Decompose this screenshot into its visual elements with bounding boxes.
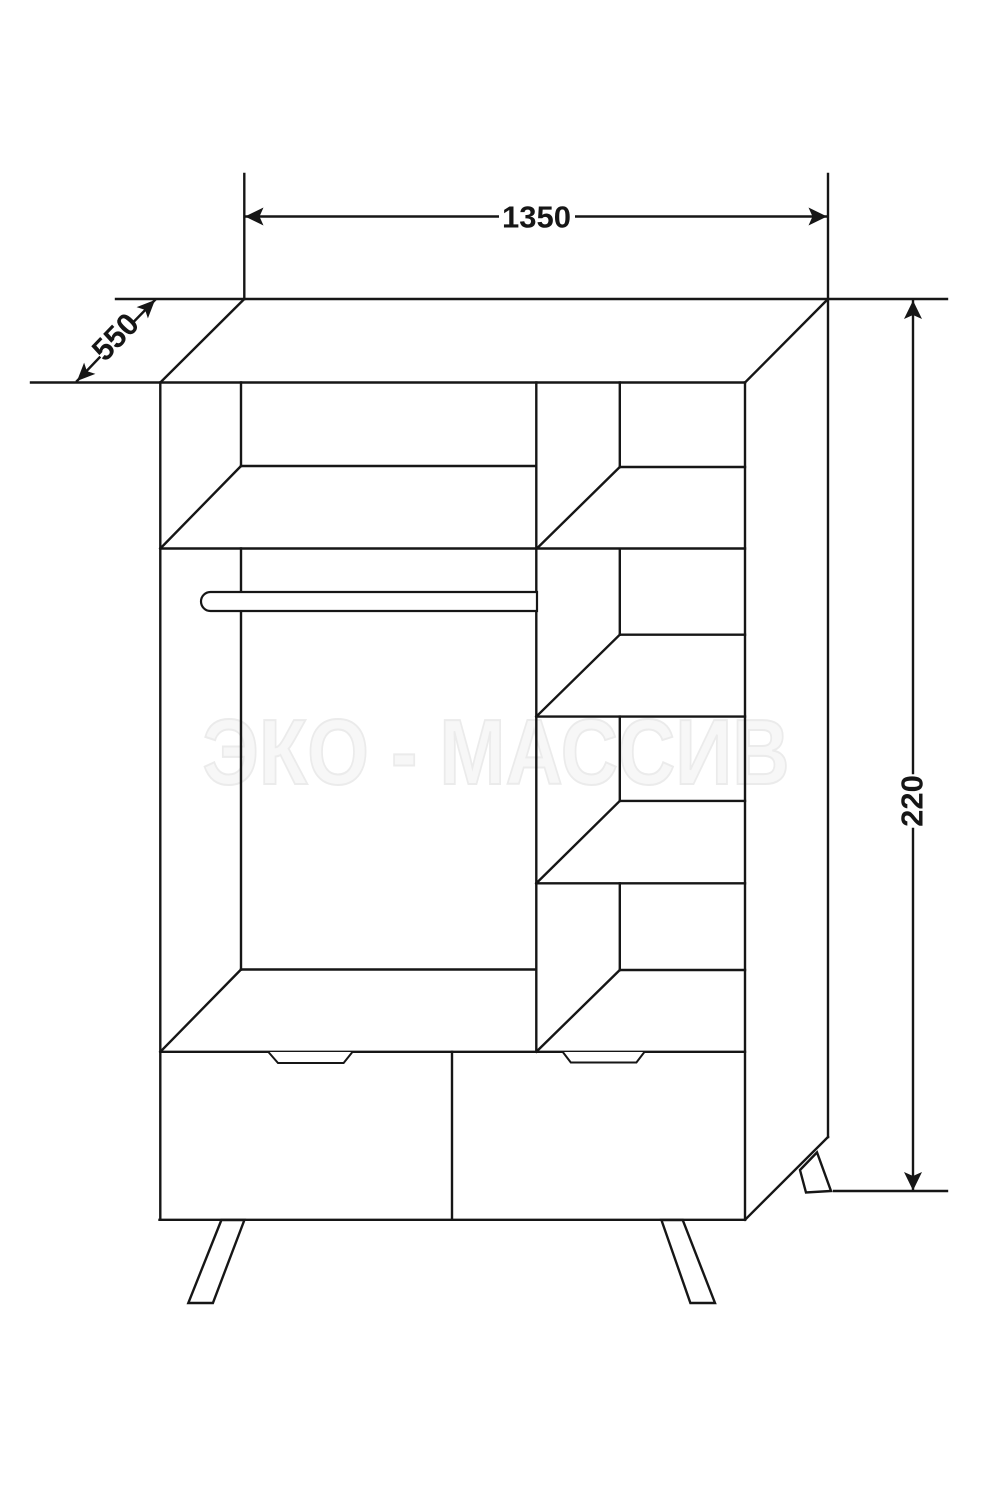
svg-text:1350: 1350 — [502, 200, 571, 235]
svg-text:220: 220 — [895, 775, 930, 827]
